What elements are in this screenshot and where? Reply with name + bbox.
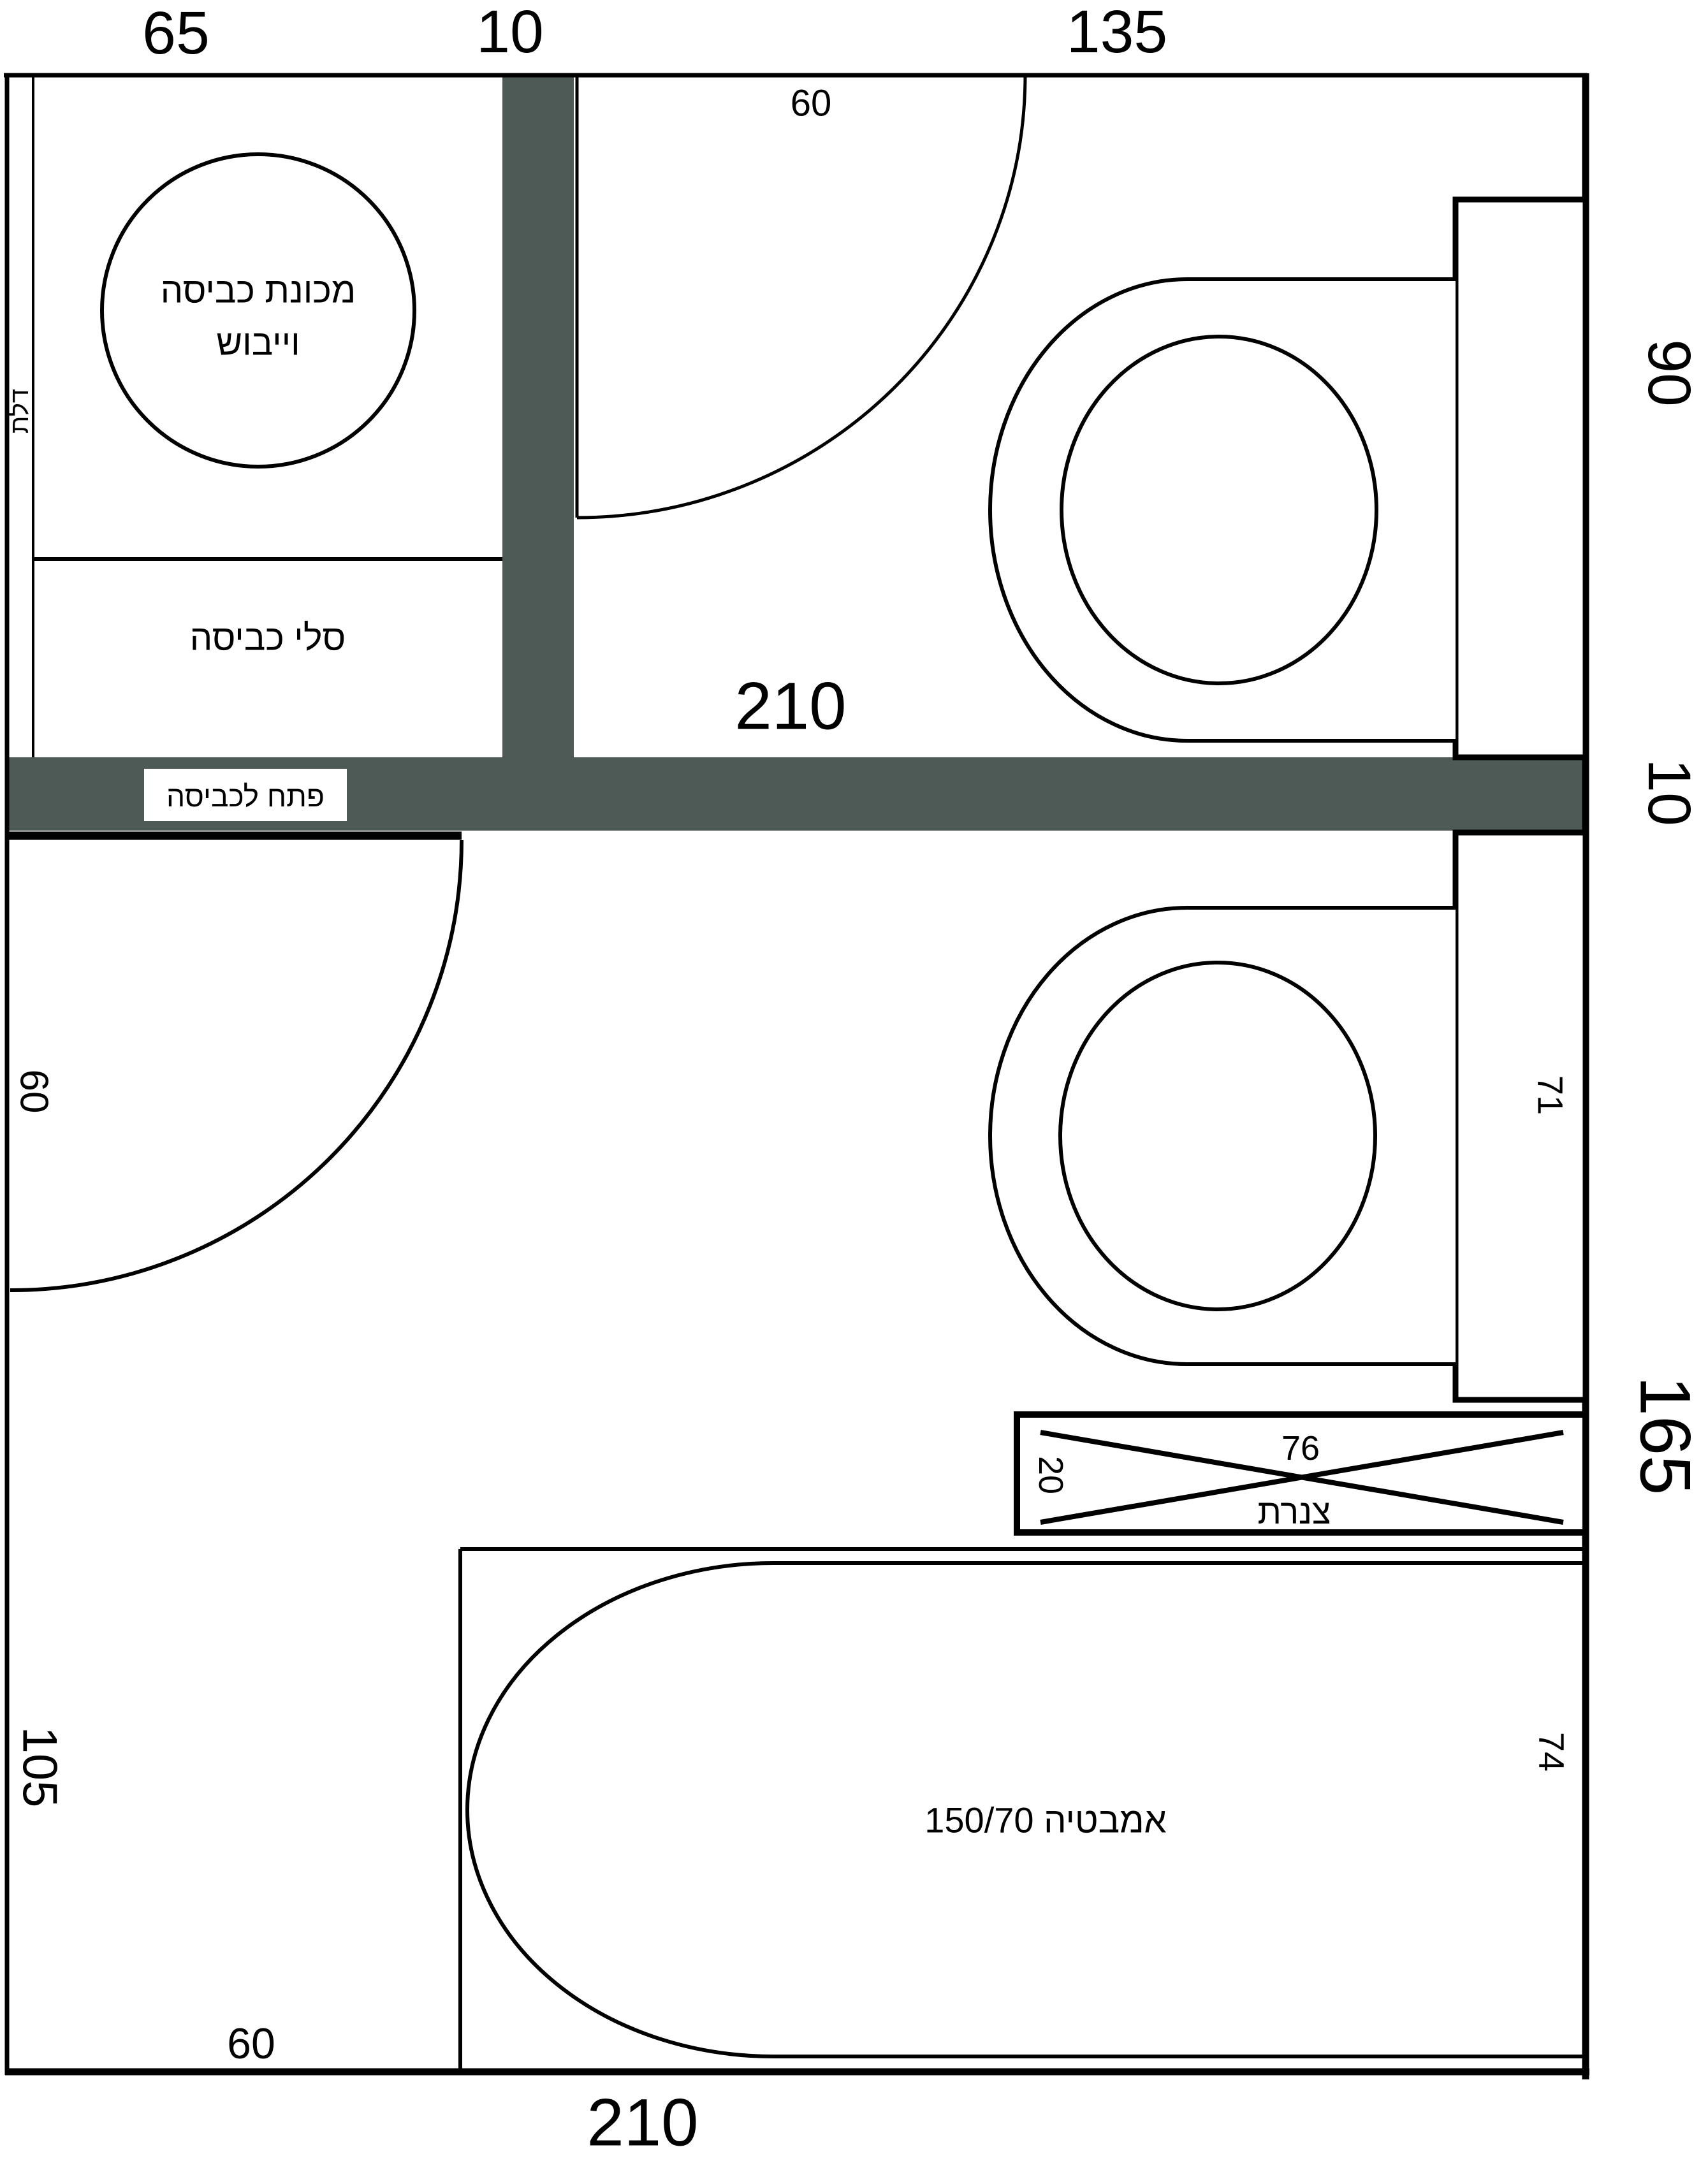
dim-top-right-room: 135 [1067, 0, 1168, 66]
dim-top-partition: 10 [476, 0, 544, 66]
floor-plan-page: 65 10 135 90 10 165 60 210 71 76 20 74 6… [0, 0, 1708, 2161]
dim-upper-room-width: 210 [734, 669, 846, 744]
lower-door-swing-arc [10, 840, 462, 1290]
partition-wall-vertical [502, 75, 574, 757]
dim-niche-height: 71 [1531, 1075, 1571, 1115]
bathtub-label: אמבטיה 150/70 [924, 1800, 1166, 1840]
dim-right-upper-room: 90 [1635, 339, 1703, 407]
dim-lower-door: 60 [12, 1070, 56, 1114]
toilet-1-niche [1456, 200, 1586, 757]
dim-pipes-depth: 20 [1032, 1456, 1070, 1494]
washer-label-line1: מכונת כביסה [161, 270, 356, 310]
dim-upper-door: 60 [791, 83, 832, 124]
dim-bottom-total: 210 [587, 2086, 698, 2160]
floor-plan-canvas: 65 10 135 90 10 165 60 210 71 76 20 74 6… [0, 0, 1708, 2161]
laundry-hatch-label: פתח לכביסה [166, 780, 325, 813]
dim-top-left-room: 65 [142, 0, 210, 67]
washing-machine-circle [102, 154, 414, 467]
door-strip-label: דלת [6, 389, 34, 433]
dim-right-wall: 10 [1635, 759, 1703, 826]
dim-right-lower-room: 165 [1626, 1376, 1705, 1495]
dim-bath-width: 74 [1532, 1732, 1572, 1772]
washer-label-line2: וייבוש [216, 323, 300, 363]
laundry-baskets-label: סלי כביסה [190, 618, 346, 658]
pipes-label: צנרת [1258, 1493, 1331, 1531]
toilet-2-niche [1456, 833, 1586, 1400]
dim-bath-left-offset: 60 [227, 2019, 275, 2068]
upper-door-swing-arc [577, 75, 1025, 518]
dim-pipes-width: 76 [1281, 1429, 1320, 1467]
dim-left-lower-wall: 105 [13, 1727, 67, 1808]
